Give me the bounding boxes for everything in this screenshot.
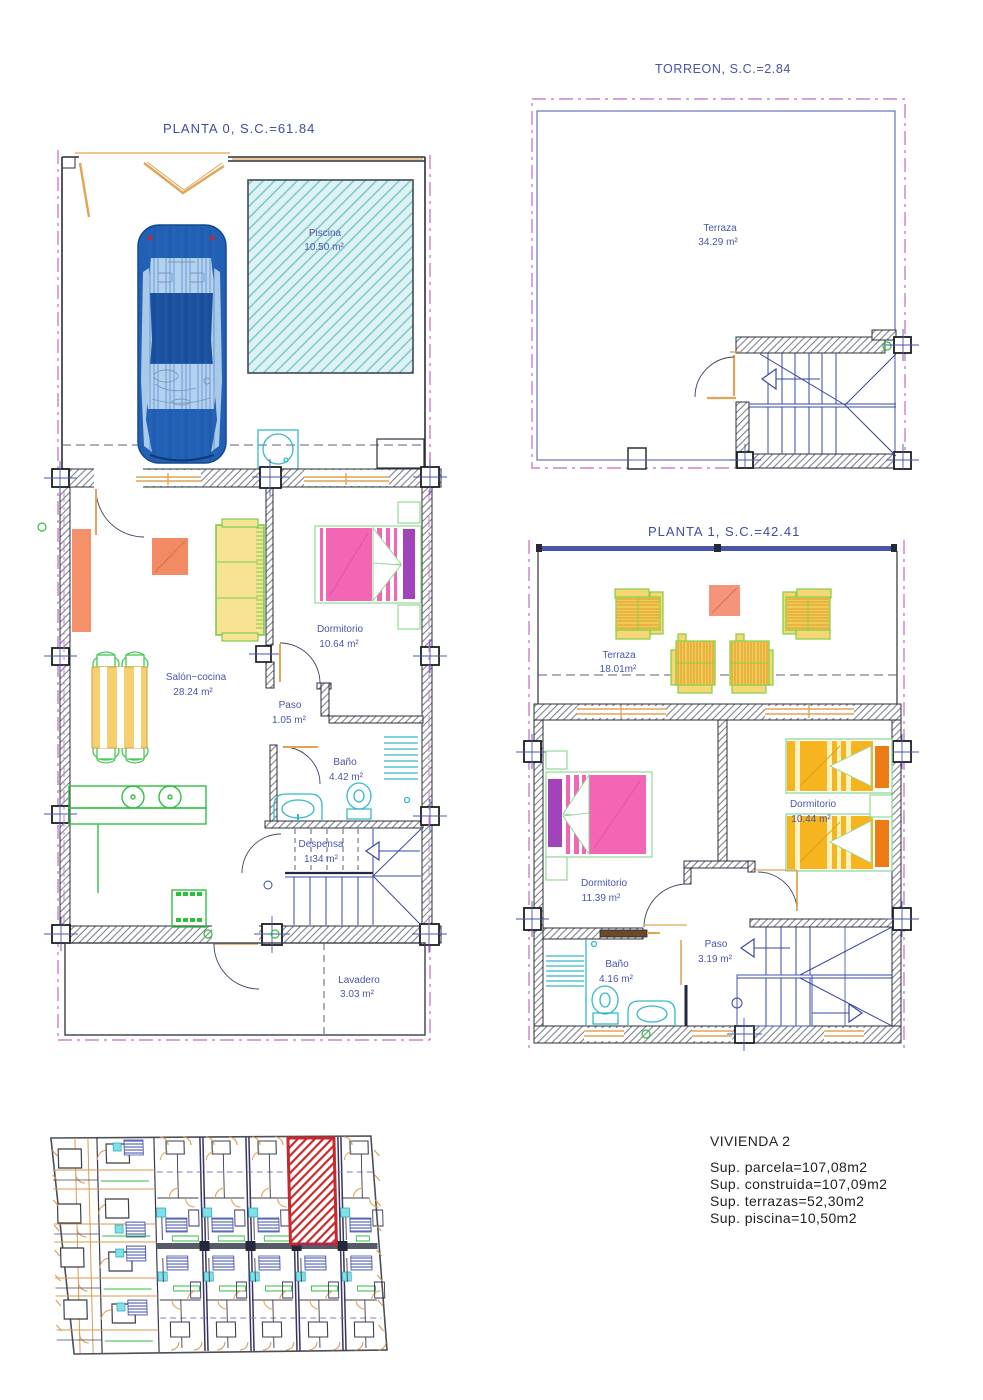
svg-text:Sup. construida=107,09m2: Sup. construida=107,09m2: [710, 1176, 887, 1192]
svg-text:Dormitorio: Dormitorio: [317, 624, 364, 635]
svg-text:Piscina: Piscina: [309, 228, 342, 239]
svg-text:1.05 m²: 1.05 m²: [272, 715, 307, 726]
svg-text:Despensa: Despensa: [298, 839, 343, 850]
svg-text:28.24 m²: 28.24 m²: [173, 687, 213, 698]
svg-text:Paso: Paso: [705, 939, 728, 950]
svg-text:3.03 m²: 3.03 m²: [340, 989, 375, 1000]
svg-text:VIVIENDA 2: VIVIENDA 2: [710, 1133, 790, 1149]
svg-text:Baño: Baño: [333, 757, 357, 768]
svg-text:4.16 m²: 4.16 m²: [599, 974, 634, 985]
svg-text:3.19 m²: 3.19 m²: [698, 954, 733, 965]
svg-text:Dormitorio: Dormitorio: [790, 799, 837, 810]
svg-text:Paso: Paso: [279, 700, 302, 711]
svg-text:Lavadero: Lavadero: [338, 975, 380, 986]
svg-text:Sup. parcela=107,08m2: Sup. parcela=107,08m2: [710, 1159, 867, 1175]
svg-text:10.44 m²: 10.44 m²: [791, 814, 831, 825]
svg-text:11.39 m²: 11.39 m²: [582, 893, 621, 904]
svg-text:10.50 m²: 10.50 m²: [304, 242, 344, 253]
svg-text:PLANTA 0, S.C.=61.84: PLANTA 0, S.C.=61.84: [163, 121, 315, 136]
svg-text:1.34 m²: 1.34 m²: [304, 854, 339, 865]
svg-text:Dormitorio: Dormitorio: [581, 878, 628, 889]
svg-text:Sup. terrazas=52,30m2: Sup. terrazas=52,30m2: [710, 1193, 864, 1209]
svg-text:Sup. piscina=10,50m2: Sup. piscina=10,50m2: [710, 1210, 857, 1226]
svg-text:18.01m²: 18.01m²: [600, 664, 637, 675]
svg-text:Terraza: Terraza: [703, 223, 737, 234]
svg-text:4.42 m²: 4.42 m²: [329, 772, 364, 783]
svg-text:Baño: Baño: [605, 959, 629, 970]
svg-text:PLANTA 1, S.C.=42.41: PLANTA 1, S.C.=42.41: [648, 524, 800, 539]
svg-text:Terraza: Terraza: [602, 650, 636, 661]
svg-text:TORREON, S.C.=2.84: TORREON, S.C.=2.84: [655, 62, 791, 76]
svg-text:10.64 m²: 10.64 m²: [319, 639, 359, 650]
svg-text:34.29 m²: 34.29 m²: [698, 237, 738, 248]
svg-text:Salón−cocina: Salón−cocina: [166, 672, 227, 683]
